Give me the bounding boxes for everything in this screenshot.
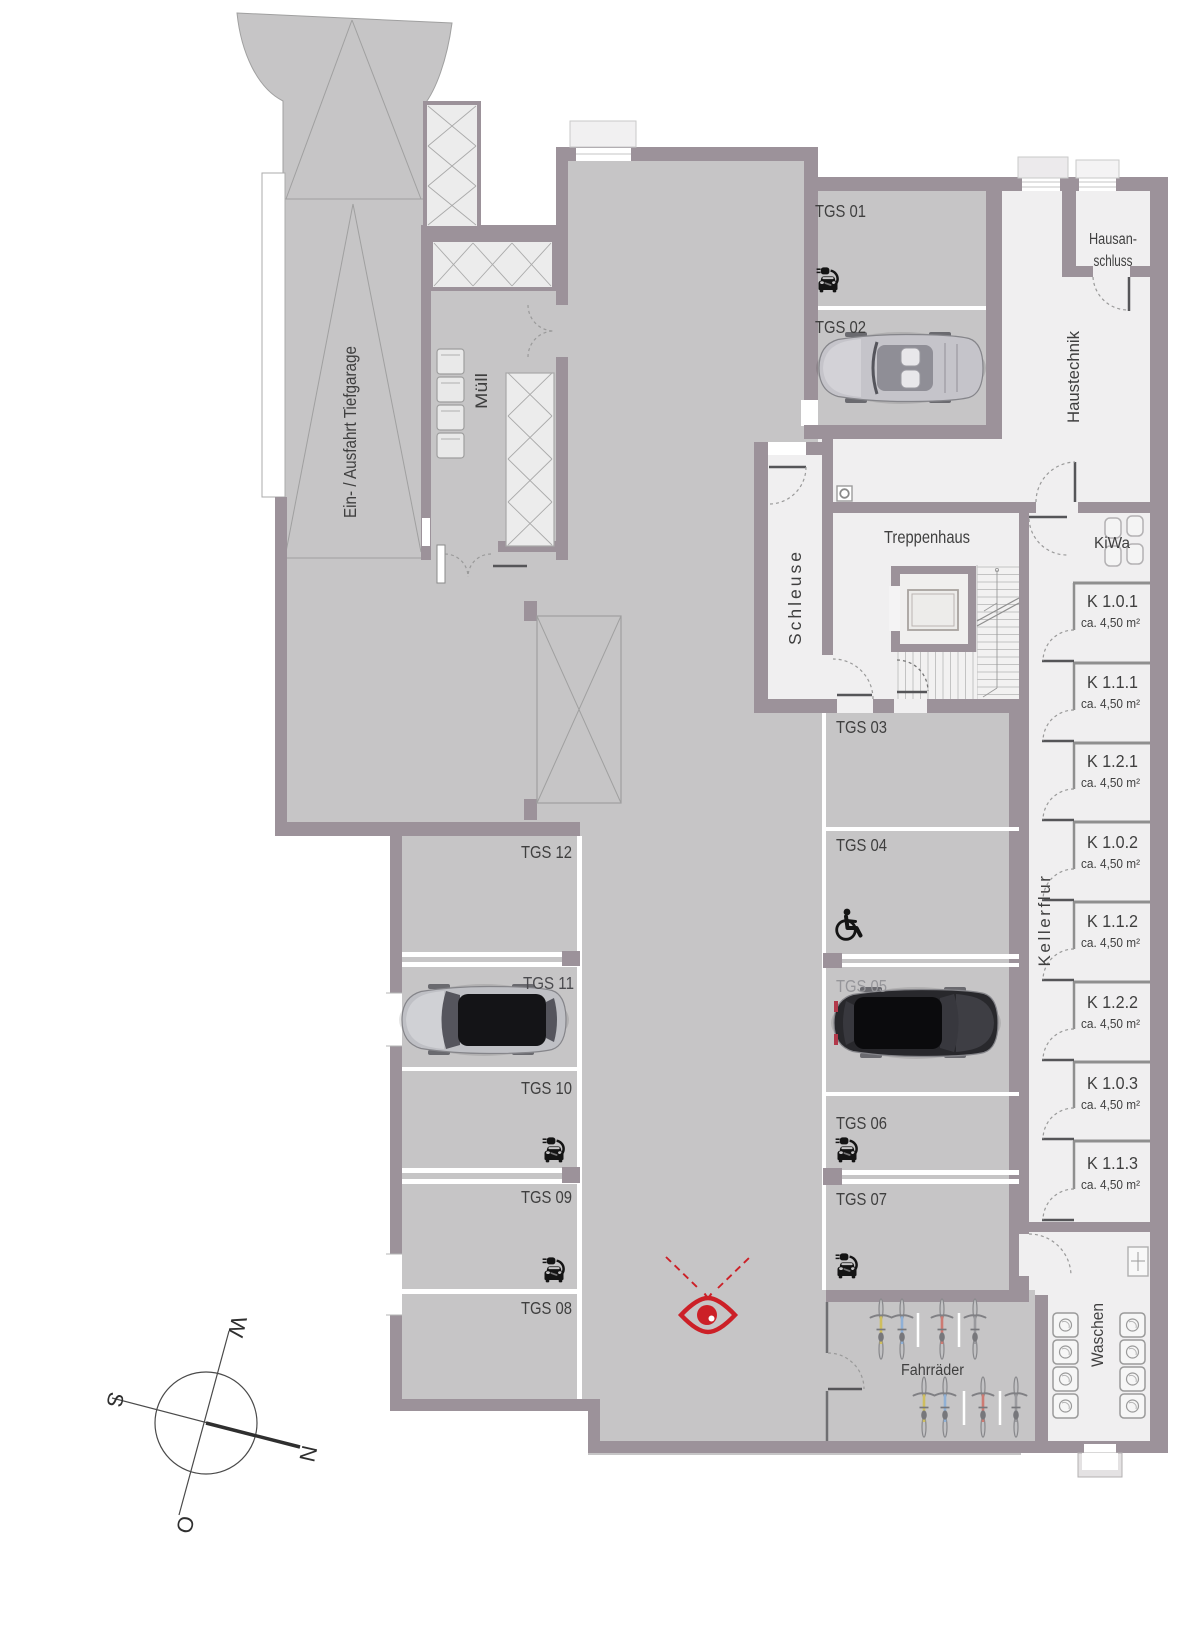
svg-text:K 1.1.3: K 1.1.3 xyxy=(1087,1153,1138,1173)
svg-text:ca. 4,50 m²: ca. 4,50 m² xyxy=(1081,1098,1140,1112)
svg-text:K 1.2.1: K 1.2.1 xyxy=(1087,751,1138,771)
svg-text:TGS 11: TGS 11 xyxy=(523,973,574,993)
svg-text:TGS 05: TGS 05 xyxy=(836,976,887,996)
svg-text:TGS 07: TGS 07 xyxy=(836,1189,887,1209)
svg-text:K 1.0.2: K 1.0.2 xyxy=(1087,832,1138,852)
svg-text:TGS 08: TGS 08 xyxy=(521,1298,572,1318)
svg-text:Schleuse: Schleuse xyxy=(785,549,805,645)
svg-text:Müll: Müll xyxy=(472,373,491,409)
svg-text:ca. 4,50 m²: ca. 4,50 m² xyxy=(1081,697,1140,711)
svg-text:TGS 10: TGS 10 xyxy=(521,1078,572,1098)
svg-text:Haustechnik: Haustechnik xyxy=(1064,331,1083,423)
svg-text:ca. 4,50 m²: ca. 4,50 m² xyxy=(1081,936,1140,950)
svg-text:schluss: schluss xyxy=(1094,253,1133,270)
svg-text:Fahrräder: Fahrräder xyxy=(901,1362,964,1379)
svg-text:K 1.2.2: K 1.2.2 xyxy=(1087,992,1138,1012)
svg-text:ca. 4,50 m²: ca. 4,50 m² xyxy=(1081,1017,1140,1031)
svg-text:K 1.1.1: K 1.1.1 xyxy=(1087,672,1138,692)
svg-text:K 1.1.2: K 1.1.2 xyxy=(1087,911,1138,931)
svg-text:Ein- / Ausfahrt Tiefgarage: Ein- / Ausfahrt Tiefgarage xyxy=(340,346,360,518)
svg-text:TGS 01: TGS 01 xyxy=(815,201,866,221)
svg-text:ca. 4,50 m²: ca. 4,50 m² xyxy=(1081,616,1140,630)
svg-text:ca. 4,50 m²: ca. 4,50 m² xyxy=(1081,1178,1140,1192)
svg-text:Waschen: Waschen xyxy=(1088,1303,1107,1367)
svg-text:TGS 09: TGS 09 xyxy=(521,1187,572,1207)
svg-text:K 1.0.1: K 1.0.1 xyxy=(1087,591,1138,611)
svg-text:Treppenhaus: Treppenhaus xyxy=(884,527,970,547)
svg-text:ca. 4,50 m²: ca. 4,50 m² xyxy=(1081,857,1140,871)
svg-text:TGS 02: TGS 02 xyxy=(815,317,866,337)
svg-text:TGS 04: TGS 04 xyxy=(836,835,887,855)
svg-text:KiWa: KiWa xyxy=(1094,535,1130,552)
svg-text:TGS 06: TGS 06 xyxy=(836,1113,887,1133)
svg-text:K 1.0.3: K 1.0.3 xyxy=(1087,1073,1138,1093)
svg-text:Kellerflur: Kellerflur xyxy=(1035,873,1054,966)
svg-text:TGS 03: TGS 03 xyxy=(836,717,887,737)
svg-text:ca. 4,50 m²: ca. 4,50 m² xyxy=(1081,776,1140,790)
svg-text:TGS 12: TGS 12 xyxy=(521,842,572,862)
svg-text:Hausan-: Hausan- xyxy=(1089,231,1137,248)
